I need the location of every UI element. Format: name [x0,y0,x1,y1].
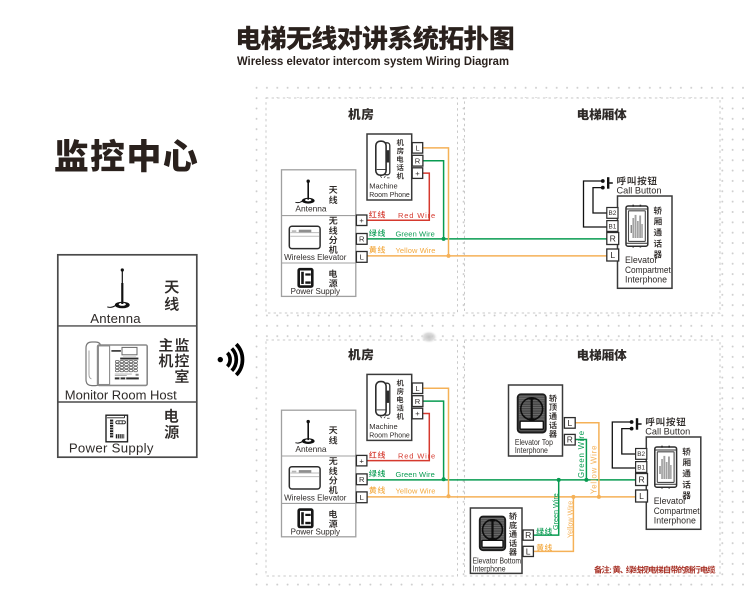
svg-text:B1: B1 [637,464,645,471]
svg-text:+: + [359,216,364,225]
svg-text:L: L [567,418,572,428]
svg-text:R: R [415,397,421,406]
svg-text:Elevator: Elevator [654,496,686,506]
svg-text:Room Phone: Room Phone [369,430,410,439]
svg-text:B1: B1 [608,223,616,230]
svg-text:Interphone: Interphone [473,565,506,574]
svg-text:+: + [415,409,420,418]
svg-text:Wireless elevator intercom sys: Wireless elevator intercom system Wiring… [237,54,509,68]
svg-text:Red Wire: Red Wire [398,451,436,460]
svg-text:Red Wire: Red Wire [398,211,436,220]
svg-text:+: + [415,169,420,178]
svg-text:R: R [525,530,531,540]
svg-text:Interphone: Interphone [515,446,548,455]
svg-text:Antenna: Antenna [295,444,327,454]
svg-text:+: + [359,456,364,465]
svg-text::: : [609,566,612,575]
svg-text:Green Wire: Green Wire [396,230,435,239]
svg-text:L: L [360,493,364,502]
svg-text:Interphone: Interphone [625,275,667,285]
svg-text:Compartmet: Compartmet [654,506,700,516]
svg-text:Antenna: Antenna [295,204,327,214]
svg-text:L: L [415,384,419,393]
svg-text:L: L [415,144,419,153]
svg-text:Power Supply: Power Supply [69,440,154,455]
svg-text:R: R [610,234,616,244]
svg-text:Yellow Wire: Yellow Wire [590,445,599,494]
svg-text:Wireless Elevator: Wireless Elevator [284,253,347,262]
svg-text:Green Wire: Green Wire [396,470,435,479]
svg-text:Compartmet: Compartmet [625,265,671,275]
svg-text:Room Phone: Room Phone [369,190,410,199]
svg-text:Elevator: Elevator [625,255,657,265]
svg-text:Yellow Wire: Yellow Wire [566,501,575,538]
svg-text:R: R [359,475,365,484]
svg-text:L: L [360,253,364,262]
svg-text:R: R [567,435,573,445]
svg-text:Yellow Wire: Yellow Wire [396,487,436,496]
svg-text:Interphone: Interphone [654,516,696,526]
svg-text:Call Button: Call Button [617,186,662,196]
svg-text:R: R [638,475,644,485]
svg-text:Antenna: Antenna [90,311,141,326]
svg-text:Monitor Room Host: Monitor Room Host [65,387,177,402]
svg-text:R: R [359,235,365,244]
svg-text:L: L [526,547,531,557]
svg-text:B2: B2 [637,451,645,458]
svg-text:L: L [610,250,615,260]
svg-text:Power Supply: Power Supply [291,528,340,537]
svg-text:Call Button: Call Button [645,427,690,437]
svg-text:Yellow Wire: Yellow Wire [396,246,436,255]
svg-text:Wireless Elevator: Wireless Elevator [284,494,347,503]
svg-text:B2: B2 [608,210,616,217]
svg-text:L: L [639,491,644,501]
svg-text:Green Wire: Green Wire [551,493,560,530]
svg-text:Green Wire: Green Wire [577,430,586,478]
svg-text:R: R [415,156,421,165]
svg-text:Power Supply: Power Supply [291,287,340,296]
